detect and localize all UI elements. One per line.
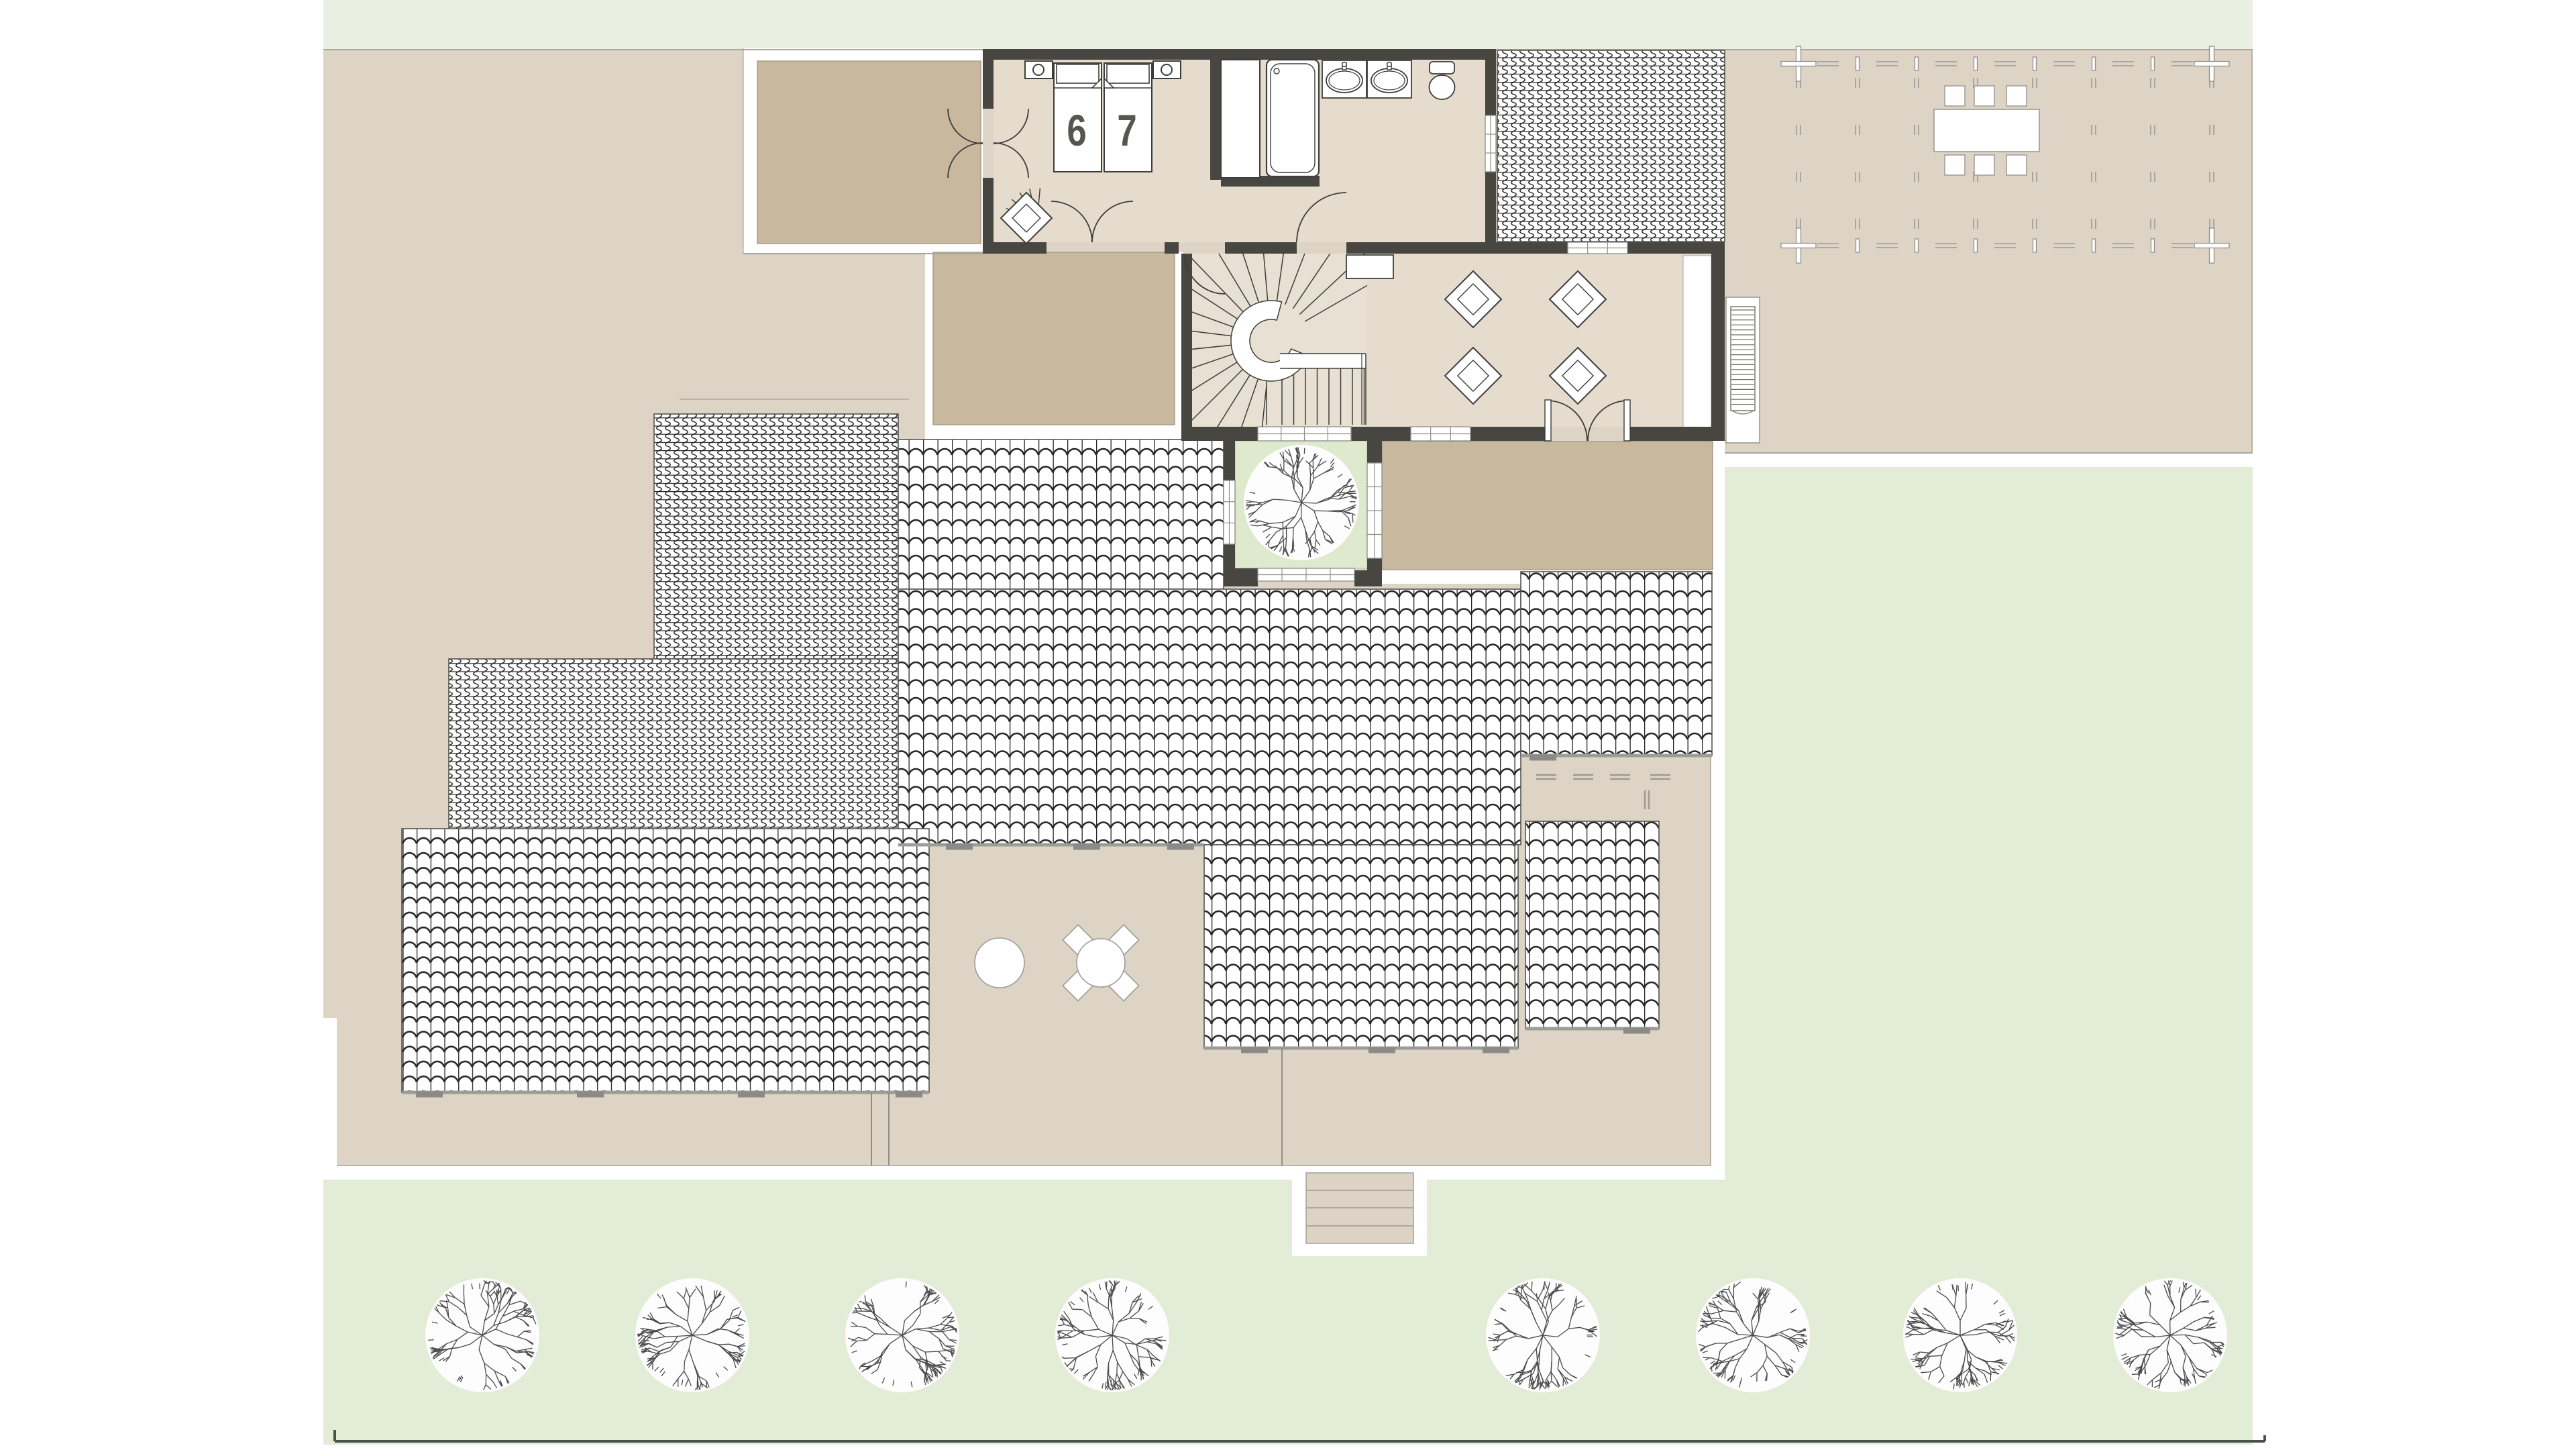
svg-text:7: 7	[1117, 105, 1136, 155]
svg-text:6: 6	[1067, 105, 1086, 155]
